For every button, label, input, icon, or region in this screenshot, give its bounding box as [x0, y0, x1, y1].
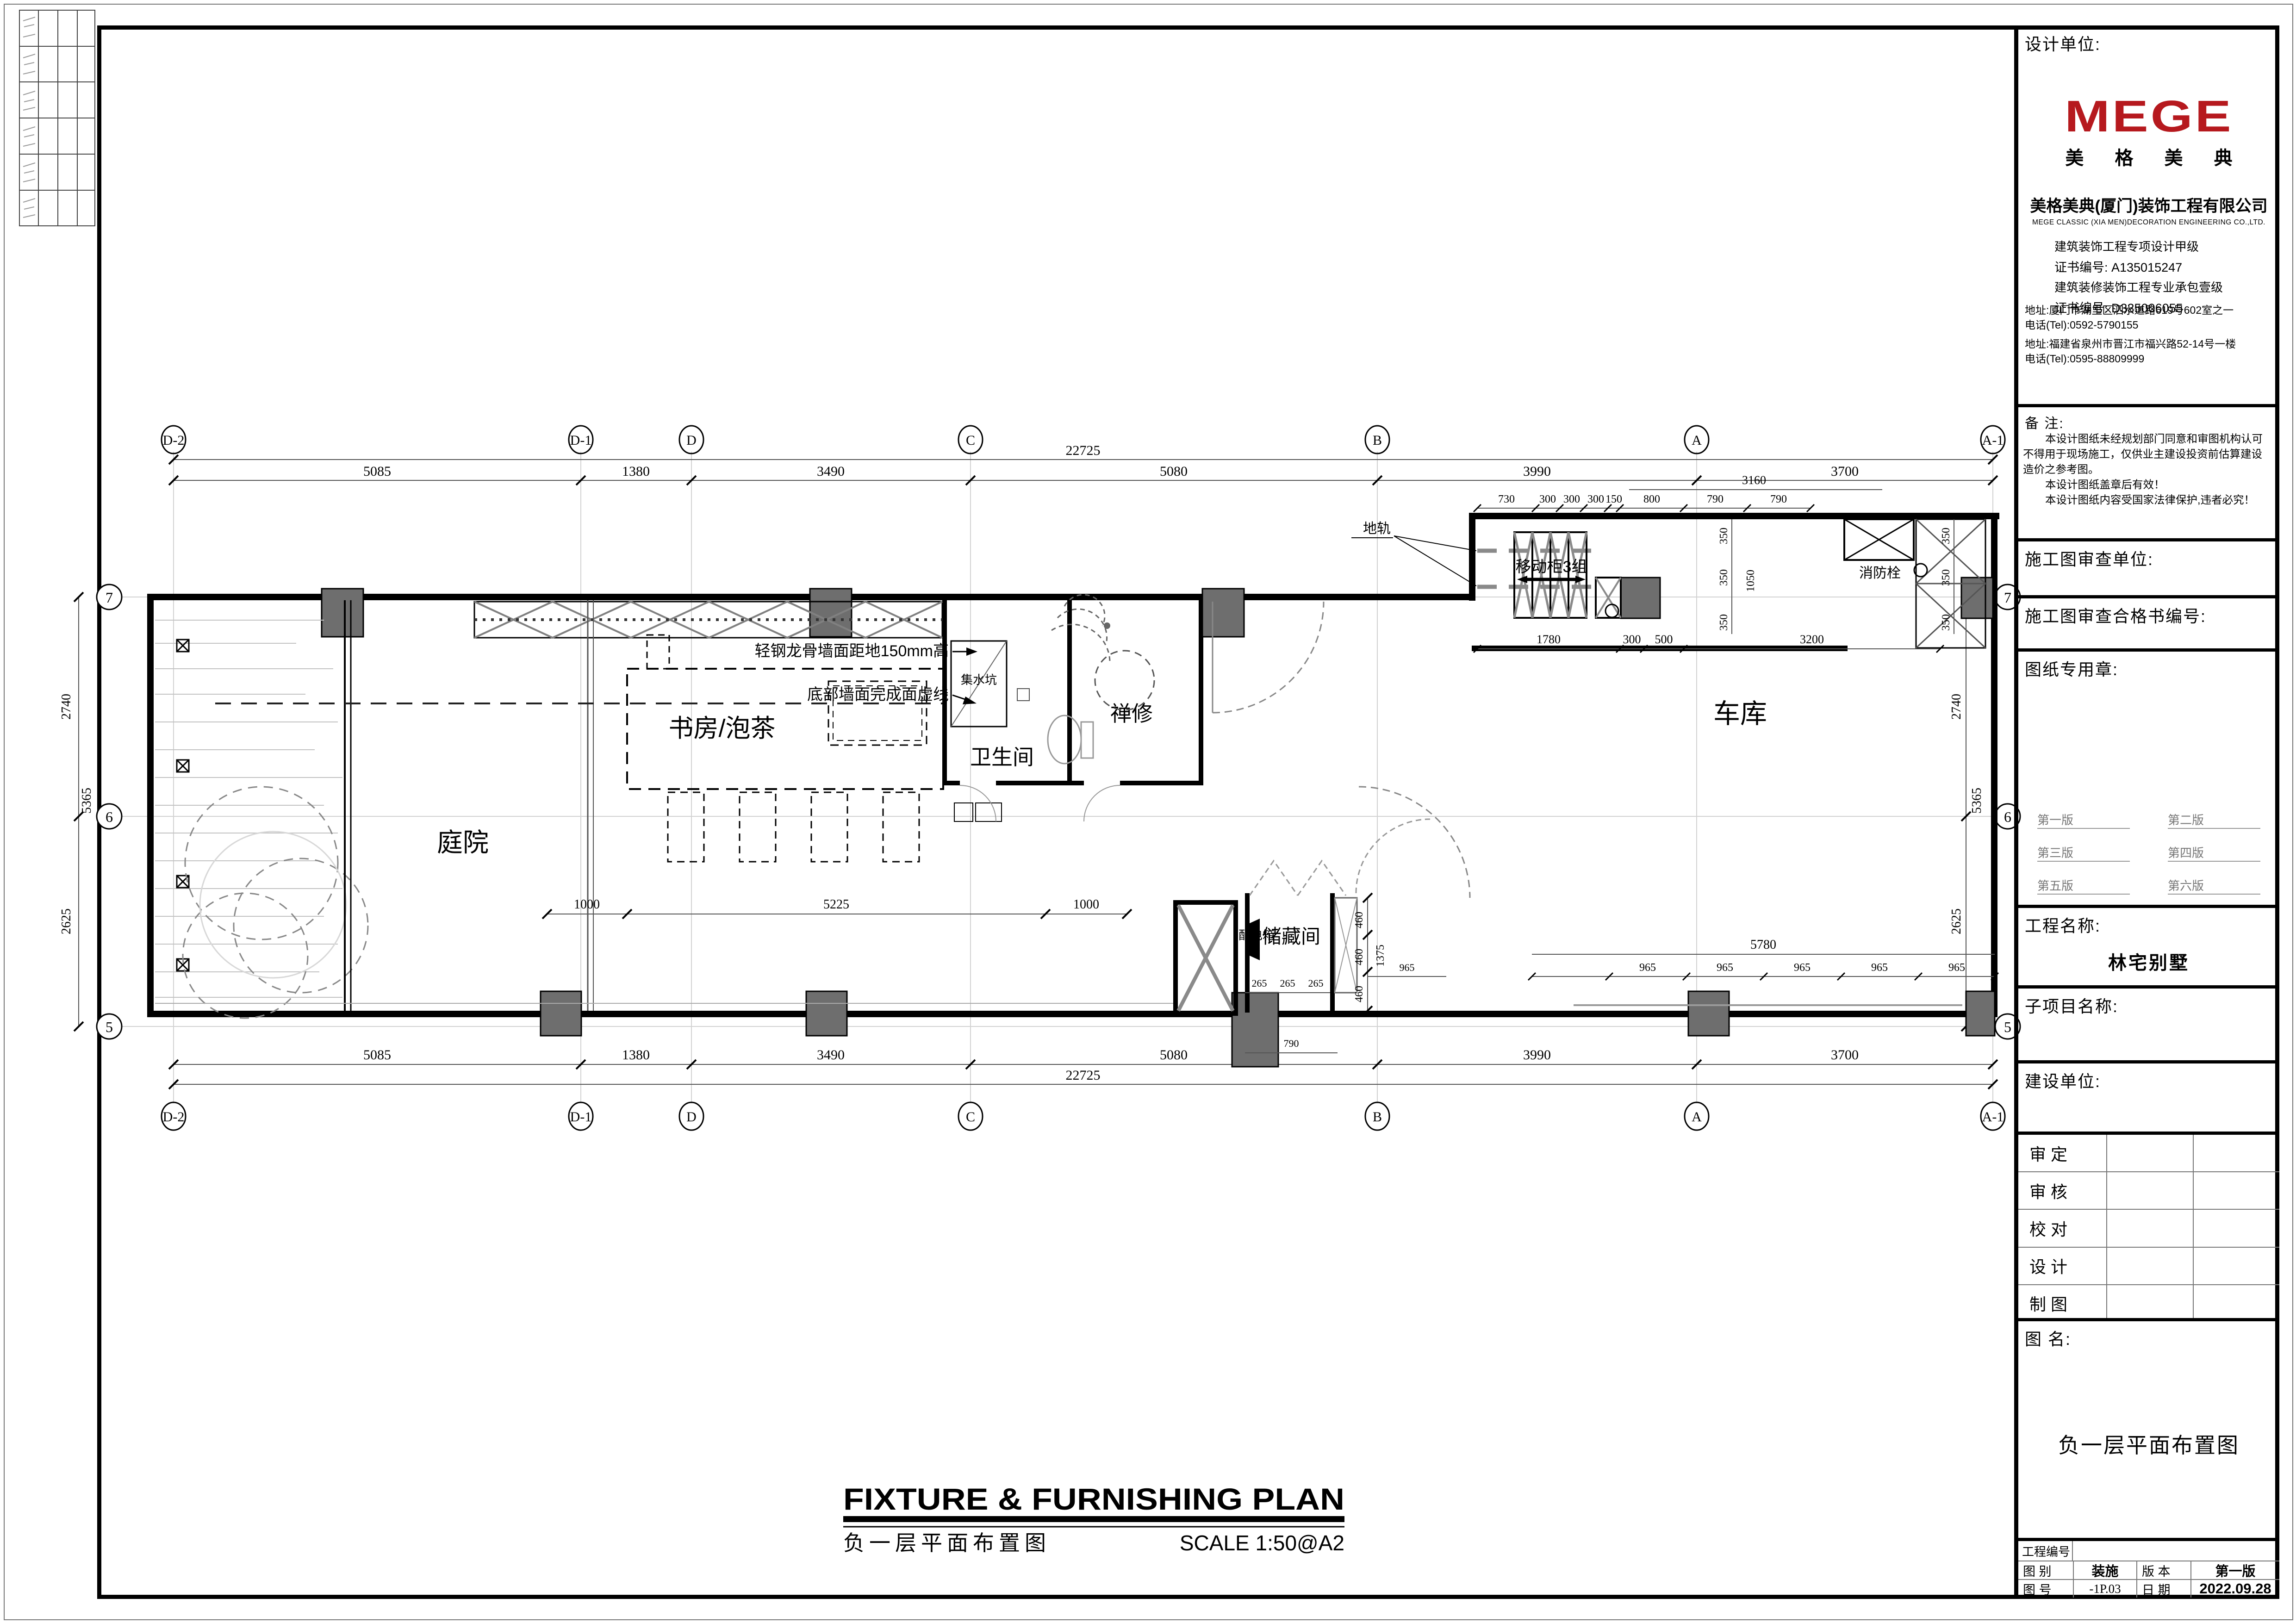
title-scale: SCALE 1:50@A2: [1180, 1531, 1344, 1555]
note-line: 不得用于现场施工，仅供业主建设投资前估算建设: [2023, 447, 2275, 462]
svg-text:460: 460: [1353, 949, 1365, 965]
svg-text:1780: 1780: [1537, 633, 1561, 646]
svg-text:A: A: [1692, 1109, 1702, 1125]
grid-bubbles-bottom: D-2 D-1 D C B A A-1: [162, 1102, 2005, 1130]
svg-text:7: 7: [106, 589, 113, 606]
svg-text:300: 300: [1539, 493, 1556, 505]
dim-band-top: [169, 455, 1997, 485]
study-dims: 1000 5225 1000: [542, 897, 1132, 919]
note-line: 本设计图纸盖章后有效！: [2023, 477, 2275, 492]
subproject-label: 子项目名称:: [2025, 993, 2118, 1017]
svg-text:965: 965: [1639, 962, 1656, 974]
svg-text:3700: 3700: [1831, 464, 1859, 479]
svg-text:265: 265: [1252, 977, 1267, 989]
svg-text:265: 265: [1280, 977, 1295, 989]
svg-text:5085: 5085: [363, 464, 391, 479]
svg-text:5: 5: [2004, 1019, 2011, 1035]
client-label: 建设单位:: [2025, 1068, 2101, 1092]
svg-text:2740: 2740: [59, 694, 74, 720]
svg-text:790: 790: [1770, 493, 1787, 505]
room-labels: 庭院 书房/泡茶 卫生间 禅修 车库 储藏间 配电箱 集水坑 移动柜3组 消防栓: [437, 558, 1901, 947]
sign-cell: [2193, 1248, 2279, 1284]
svg-text:460: 460: [1353, 912, 1365, 928]
svg-text:5080: 5080: [1160, 1047, 1188, 1063]
sheet-title: FIXTURE & FURNISHING PLAN 负一层平面布置图 SCALE…: [843, 1482, 1344, 1555]
svg-text:D-2: D-2: [163, 433, 185, 448]
svg-text:790: 790: [1284, 1038, 1299, 1049]
tb-subproject: 子项目名称:: [2018, 989, 2279, 1063]
sign-label: 审 核: [2018, 1172, 2106, 1209]
svg-text:460: 460: [1353, 986, 1365, 1002]
date-value: 2022.09.28: [2190, 1580, 2279, 1598]
title-en: FIXTURE & FURNISHING PLAN: [843, 1482, 1344, 1516]
svg-text:350: 350: [1940, 569, 1952, 586]
svg-text:350: 350: [1940, 614, 1952, 631]
plant-circles: [183, 787, 368, 1018]
hydrant-box: [1844, 519, 1914, 560]
svg-text:965: 965: [1717, 962, 1733, 974]
dim-band-right-text: 2740 2625 5365: [1949, 694, 1984, 934]
note-line: 本设计图纸内容受国家法律保护,违者必究！: [2023, 492, 2275, 508]
tb-review-unit: 施工图审查单位:: [2018, 541, 2279, 598]
elevator-storage: [1176, 819, 1430, 1014]
svg-text:A-1: A-1: [1982, 433, 2004, 448]
addr1: 地址:厦门市湖里区泗水道路619号602室之一: [2025, 303, 2236, 318]
tb-design-unit: 设计单位: MEGE 美 格 美 典 美格美典(厦门)装饰工程有限公司 MEGE…: [2018, 26, 2279, 407]
stamp-label: 图纸专用章:: [2025, 656, 2118, 680]
svg-text:D: D: [686, 1109, 697, 1125]
svg-text:790: 790: [1707, 493, 1724, 505]
svg-text:3700: 3700: [1831, 1047, 1859, 1063]
svg-text:965: 965: [1948, 962, 1965, 974]
sump-label: 集水坑: [961, 673, 997, 687]
company-name-en: MEGE CLASSIC (XIA MEN)DECORATION ENGINEE…: [2018, 218, 2279, 227]
note-line: 造价之参考图。: [2023, 462, 2275, 477]
sign-cell: [2193, 1135, 2279, 1171]
svg-text:965: 965: [1871, 962, 1888, 974]
sign-label: 校 对: [2018, 1210, 2106, 1246]
tb-bottom-table: 工程编号 图 别 装施 版 本 第一版 图 号 -1P.03 日 期 2022.…: [2018, 1541, 2279, 1598]
review-no-label: 施工图审查合格书编号:: [2025, 603, 2206, 627]
svg-text:730: 730: [1498, 493, 1515, 505]
anno-dash-label: 底部墙面完成面虚线: [807, 686, 949, 703]
courtyard-deck: [155, 600, 593, 1018]
cert2: 建筑装修装饰工程专业承包壹级: [2054, 278, 2223, 295]
svg-text:1000: 1000: [1073, 897, 1099, 912]
svg-text:350: 350: [1940, 528, 1952, 544]
project-name-label: 工程名称:: [2025, 913, 2101, 937]
svg-text:500: 500: [1655, 633, 1673, 646]
note-label: 备 注:: [2025, 412, 2064, 432]
room-meditation: 禅修: [1110, 702, 1153, 726]
svg-text:1380: 1380: [622, 464, 650, 479]
svg-text:300: 300: [1563, 493, 1580, 505]
svg-text:3990: 3990: [1523, 1047, 1551, 1063]
svg-text:3160: 3160: [1742, 473, 1766, 487]
svg-text:1375: 1375: [1375, 945, 1387, 967]
svg-text:5: 5: [106, 1019, 113, 1035]
svg-text:B: B: [1373, 433, 1382, 448]
dist-box-label: 配电箱: [1238, 928, 1275, 942]
version-value: 第一版: [2190, 1561, 2279, 1579]
sign-cell: [2193, 1285, 2279, 1321]
svg-text:7: 7: [2004, 589, 2011, 606]
sign-cell: [2193, 1210, 2279, 1246]
svg-text:300: 300: [1587, 493, 1604, 505]
room-courtyard: 庭院: [437, 828, 489, 857]
type-label: 图 别: [2018, 1561, 2073, 1579]
svg-text:3490: 3490: [817, 464, 845, 479]
ground-rail-label: 地轨: [1363, 521, 1391, 536]
version-slot: 第六版: [2168, 877, 2260, 895]
dim-band-bottom-text: 5085 1380 3490 5080 3990 3700 22725: [363, 1047, 1859, 1083]
svg-text:265: 265: [1308, 977, 1324, 989]
svg-text:2625: 2625: [59, 908, 74, 934]
version-label: 版 本: [2136, 1561, 2190, 1579]
no-value: -1P.03: [2073, 1580, 2136, 1598]
svg-text:6: 6: [2004, 808, 2011, 825]
title-block: 设计单位: MEGE 美 格 美 典 美格美典(厦门)装饰工程有限公司 MEGE…: [2014, 26, 2279, 1598]
svg-text:1380: 1380: [622, 1047, 650, 1063]
anno-wall-label: 轻钢龙骨墙面距地150mm高: [755, 642, 949, 660]
dim-band-top-text: 22725 5085 1380 3490 5080 3990 3700: [363, 443, 1859, 479]
dim-total-bottom: 22725: [1066, 1068, 1101, 1083]
bathroom: [951, 595, 1120, 821]
sign-cell: [2106, 1135, 2193, 1171]
version-slot: 第三版: [2037, 844, 2130, 862]
shower-icon: [1052, 595, 1110, 663]
dim-total-top: 22725: [1066, 443, 1101, 458]
sign-cell: [2193, 1172, 2279, 1209]
svg-text:3200: 3200: [1800, 633, 1824, 646]
svg-text:5365: 5365: [1970, 788, 1984, 814]
tb-stamp: 图纸专用章: 第一版 第二版 第三版 第四版 第五版 第六版: [2018, 652, 2279, 908]
cert1: 建筑装饰工程专项设计甲级: [2054, 237, 2223, 255]
svg-text:2625: 2625: [1949, 908, 1964, 934]
sign-label: 设 计: [2018, 1248, 2106, 1284]
review-unit-label: 施工图审查单位:: [2025, 546, 2153, 570]
svg-text:965: 965: [1794, 962, 1811, 974]
svg-text:350: 350: [1718, 528, 1730, 544]
tb-drawing-name: 图 名: 负一层平面布置图: [2018, 1321, 2279, 1541]
svg-text:D: D: [686, 433, 697, 448]
mege-logo-sub: 美 格 美 典: [2018, 143, 2279, 170]
no-label: 图 号: [2018, 1580, 2073, 1598]
drawing-name-label: 图 名:: [2025, 1326, 2071, 1350]
svg-text:350: 350: [1718, 569, 1730, 586]
svg-text:C: C: [966, 433, 975, 448]
svg-text:1050: 1050: [1745, 570, 1757, 592]
binding-strip: [19, 10, 95, 226]
project-no-value: [2072, 1541, 2279, 1561]
sign-cell: [2106, 1210, 2193, 1246]
sign-cell: [2106, 1285, 2193, 1321]
svg-text:5365: 5365: [80, 788, 94, 814]
svg-text:5225: 5225: [823, 897, 849, 912]
svg-text:A-1: A-1: [1982, 1109, 2004, 1125]
svg-text:6: 6: [106, 808, 113, 825]
version-slot: 第五版: [2037, 877, 2130, 895]
svg-text:150: 150: [1605, 493, 1622, 505]
tb-client: 建设单位:: [2018, 1063, 2279, 1135]
hydrant-label: 消防栓: [1859, 566, 1901, 581]
title-cn: 负一层平面布置图: [843, 1531, 1051, 1555]
version-slot: 第四版: [2168, 844, 2260, 862]
svg-text:2740: 2740: [1949, 694, 1964, 720]
tb-notes: 备 注: 本设计图纸未经规划部门同意和审图机构认可 不得用于现场施工，仅供业主建…: [2018, 407, 2279, 541]
svg-text:3490: 3490: [817, 1047, 845, 1063]
project-no-label: 工程编号: [2018, 1541, 2072, 1561]
svg-text:965: 965: [1400, 962, 1415, 973]
svg-text:350: 350: [1718, 614, 1730, 631]
room-garage: 车库: [1713, 699, 1767, 729]
tb-review-no: 施工图审查合格书编号:: [2018, 598, 2279, 652]
tb-signatures: 审 定 审 核 校 对 设 计 制 图: [2018, 1135, 2279, 1321]
room-study: 书房/泡茶: [668, 715, 775, 742]
door-box: [1596, 578, 1621, 618]
svg-text:B: B: [1373, 1109, 1382, 1125]
top-wall-hatch: [474, 602, 942, 638]
drawing-sheet: 22725 5085 1380 3490 5080 3990 3700 5085…: [0, 0, 2296, 1623]
svg-text:5080: 5080: [1160, 464, 1188, 479]
tel1: 电话(Tel):0592-5790155: [2025, 318, 2236, 333]
svg-text:800: 800: [1643, 493, 1660, 505]
dim-band-left-text: 2740 2625 5365: [59, 694, 94, 934]
company-name-cn: 美格美典(厦门)装饰工程有限公司: [2018, 193, 2279, 217]
annotations: 轻钢龙骨墙面距地150mm高 底部墙面完成面虚线 地轨: [755, 521, 1476, 704]
garage-bottom-dims: 5780 965 965 965 965 965: [1528, 938, 1998, 980]
room-bath: 卫生间: [970, 745, 1034, 769]
project-name-value: 林宅别墅: [2018, 948, 2279, 975]
floor-plan: 22725 5085 1380 3490 5080 3990 3700 5085…: [0, 0, 2296, 1623]
note-line: 本设计图纸未经规划部门同意和审图机构认可: [2023, 431, 2275, 447]
svg-text:300: 300: [1623, 633, 1641, 646]
date-label: 日 期: [2136, 1580, 2190, 1598]
tb-project-name: 工程名称: 林宅别墅: [2018, 908, 2279, 989]
tel2: 电话(Tel):0595-88809999: [2025, 352, 2236, 367]
grid-bubbles-left: 7 6 5: [97, 585, 122, 1039]
drawing-name-value: 负一层平面布置图: [2018, 1429, 2279, 1459]
svg-text:3990: 3990: [1523, 464, 1551, 479]
cert1-no: 证书编号: A135015247: [2054, 257, 2223, 275]
sign-cell: [2106, 1172, 2193, 1209]
version-slot: 第一版: [2037, 811, 2130, 829]
svg-text:A: A: [1692, 433, 1702, 448]
svg-text:5780: 5780: [1750, 938, 1776, 952]
plan-walls: [147, 513, 1999, 1017]
mege-logo: MEGE: [2065, 91, 2233, 142]
entry-door: [1213, 602, 1470, 898]
mobile-cabinet-label: 移动柜3组: [1516, 558, 1587, 576]
svg-text:D-1: D-1: [570, 433, 592, 448]
sign-label: 审 定: [2018, 1135, 2106, 1171]
design-unit-label: 设计单位:: [2025, 31, 2101, 55]
type-value: 装施: [2073, 1561, 2136, 1579]
sign-label: 制 图: [2018, 1285, 2106, 1321]
svg-text:1000: 1000: [574, 897, 600, 912]
version-slot: 第二版: [2168, 811, 2260, 829]
svg-text:C: C: [966, 1109, 975, 1125]
sign-cell: [2106, 1248, 2193, 1284]
svg-text:D-2: D-2: [163, 1109, 185, 1125]
svg-text:5085: 5085: [363, 1047, 391, 1063]
svg-text:D-1: D-1: [570, 1109, 592, 1125]
addr2: 地址:福建省泉州市晋江市福兴路52-14号一楼: [2025, 337, 2236, 352]
